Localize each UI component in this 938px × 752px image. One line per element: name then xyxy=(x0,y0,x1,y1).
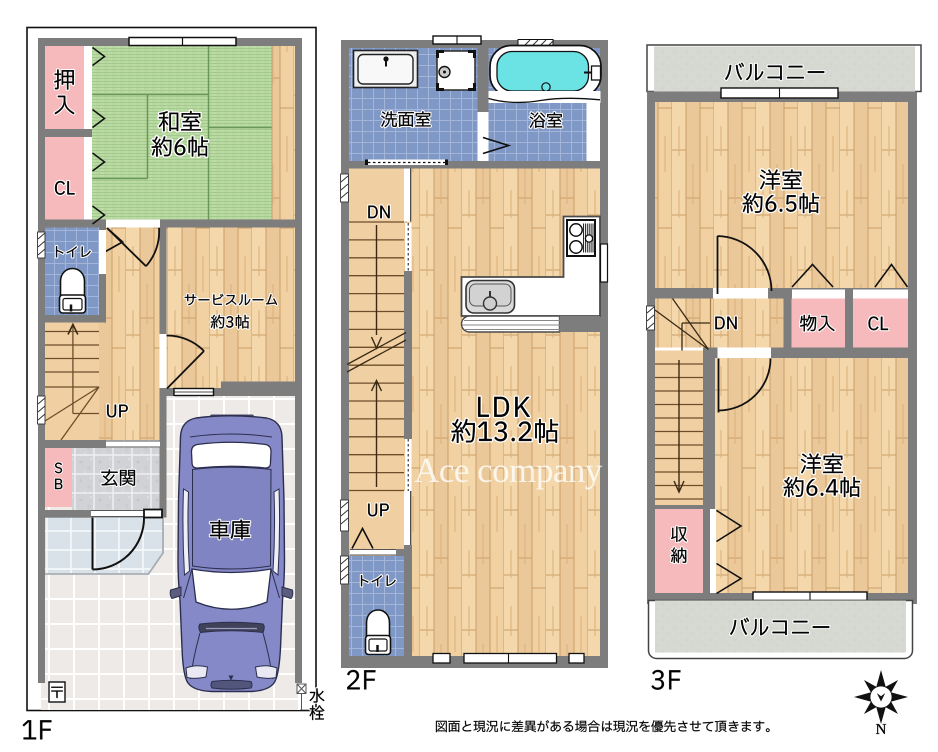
svg-text:Ace company: Ace company xyxy=(414,451,603,490)
